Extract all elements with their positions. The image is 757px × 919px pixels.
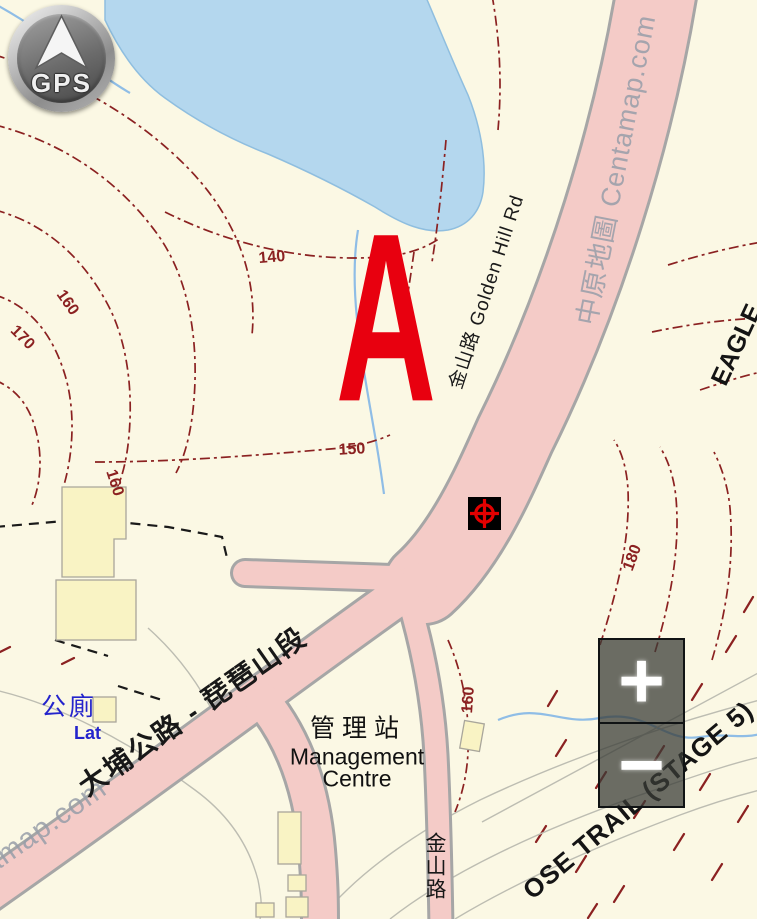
contour-label: 140 (258, 249, 286, 267)
management-centre-en2: Centre (322, 768, 391, 791)
road-label-south-kam-shan: 金山路 (424, 832, 445, 901)
crosshair-icon (468, 497, 501, 530)
position-marker (468, 497, 501, 530)
toilet-label-zh: 公廁 (41, 695, 97, 720)
zoom-in-button[interactable]: + (598, 638, 685, 724)
contour-label: 160 (460, 686, 478, 714)
marker-a[interactable]: A (336, 197, 437, 437)
management-centre-zh: 管理站 (310, 717, 406, 742)
zoom-controls: + − (598, 638, 685, 808)
zoom-out-button[interactable]: − (598, 724, 685, 808)
map-view[interactable]: 中原地圖 Centamap.com amap.com 金山路 Golden Hi… (0, 0, 757, 919)
toilet-label-en: Lat (74, 724, 101, 742)
gps-button[interactable]: GPS (8, 5, 115, 112)
gps-button-label: GPS (8, 68, 115, 99)
